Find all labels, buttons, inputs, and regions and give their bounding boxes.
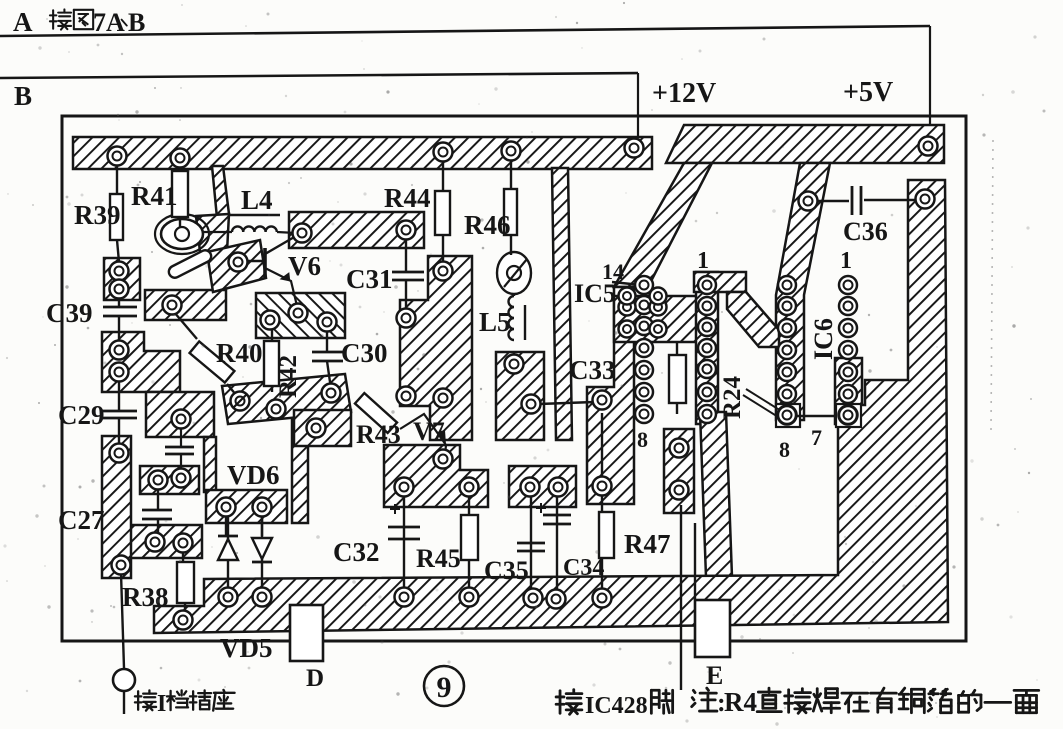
svg-text:IC428: IC428 [585, 693, 648, 719]
svg-text:V6: V6 [288, 251, 321, 281]
svg-text:I: I [157, 691, 166, 717]
svg-text:VD5: VD5 [220, 633, 273, 663]
svg-text:L4: L4 [241, 185, 273, 215]
svg-text:B: B [14, 81, 32, 111]
svg-text:D: D [306, 665, 324, 692]
svg-text:C29: C29 [58, 400, 105, 430]
svg-text:C33: C33 [569, 355, 616, 385]
svg-text:+5V: +5V [843, 77, 893, 108]
svg-text:C27: C27 [58, 505, 105, 535]
svg-text:C32: C32 [333, 537, 380, 567]
svg-text:7: 7 [811, 425, 822, 450]
svg-text:8: 8 [779, 437, 790, 462]
svg-text:7A: 7A [93, 8, 125, 37]
svg-text:V7: V7 [413, 417, 445, 446]
svg-text:R42: R42 [275, 355, 302, 398]
svg-text:R24: R24 [719, 375, 746, 419]
svg-text:9: 9 [437, 671, 452, 704]
svg-text:C39: C39 [46, 298, 93, 328]
svg-text:C35: C35 [484, 556, 529, 585]
svg-text:R47: R47 [624, 529, 671, 559]
svg-text:1: 1 [697, 248, 709, 274]
svg-text:1: 1 [840, 248, 852, 274]
svg-text:B: B [128, 8, 145, 37]
svg-text:+12V: +12V [652, 78, 716, 109]
svg-text:L5: L5 [479, 307, 511, 337]
svg-text:C36: C36 [843, 217, 888, 246]
svg-text:VD6: VD6 [227, 460, 280, 490]
svg-text:R43: R43 [356, 420, 401, 449]
svg-text:E: E [706, 661, 723, 690]
svg-text:R46: R46 [464, 210, 511, 240]
svg-text:8: 8 [637, 427, 648, 452]
svg-text:A: A [13, 7, 33, 37]
svg-text:R4: R4 [724, 687, 757, 717]
svg-text:R40: R40 [216, 338, 263, 368]
svg-text:C31: C31 [346, 264, 393, 294]
svg-text:R38: R38 [122, 582, 169, 612]
svg-text:R39: R39 [74, 200, 121, 230]
svg-text:R44: R44 [384, 183, 431, 213]
svg-text:C34: C34 [563, 555, 604, 581]
svg-text:R45: R45 [416, 544, 461, 573]
svg-text:C30: C30 [341, 338, 388, 368]
svg-text:IC6: IC6 [809, 318, 838, 360]
svg-text:14: 14 [602, 259, 624, 284]
